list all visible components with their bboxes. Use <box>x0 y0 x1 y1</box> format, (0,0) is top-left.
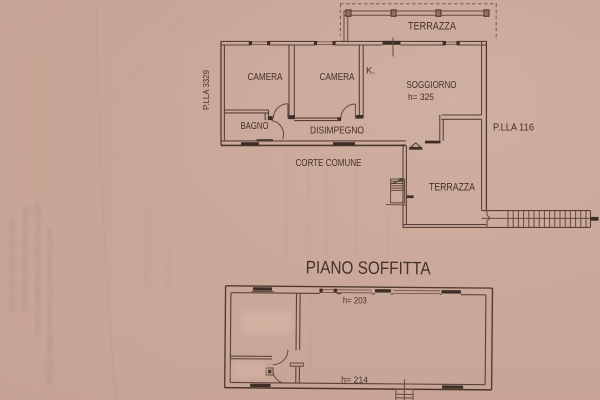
svg-text:CORTE COMUNE: CORTE COMUNE <box>296 158 362 169</box>
svg-text:unou ouom onvm uonu umo: unou ouom onvm uonu umo <box>7 219 16 312</box>
svg-text:TERRAZZA: TERRAZZA <box>429 181 476 193</box>
svg-text:h= 203: h= 203 <box>343 295 367 305</box>
svg-text:BAGNO: BAGNO <box>241 121 269 132</box>
svg-text:P.LLA 3329: P.LLA 3329 <box>202 69 211 110</box>
svg-text:h= 214: h= 214 <box>341 375 368 385</box>
svg-text:CAMERA: CAMERA <box>248 71 283 83</box>
svg-text:SOGGIORNO: SOGGIORNO <box>407 79 457 91</box>
svg-text:CAMERA: CAMERA <box>320 71 355 83</box>
svg-text:TERRAZZA: TERRAZZA <box>408 21 457 33</box>
svg-text:uom onvu mounv omuno uonm: uom onvu mounv omuno uonm <box>19 206 30 310</box>
svg-text:PIANO SOFFITTA: PIANO SOFFITTA <box>306 257 431 278</box>
svg-text:nvou uo onvuom movonvu uo ovon: nvou uo onvuom movonvu uo ovonuomo umou <box>45 228 54 385</box>
svg-text:P.LLA 116: P.LLA 116 <box>493 123 534 134</box>
svg-text:h= 325: h= 325 <box>408 92 434 102</box>
svg-text:K.: K. <box>366 66 375 77</box>
svg-text:uom movu ov: uom movu ov <box>164 245 173 290</box>
svg-text:mvono unvuom movu ovmu onvuo u: mvono unvuom movu ovmu onvuo umn <box>33 204 42 335</box>
svg-text:DISIMPEGNO: DISIMPEGNO <box>310 125 364 136</box>
svg-text:ovmu onvuom movonv: ovmu onvuom movonv <box>142 208 151 284</box>
